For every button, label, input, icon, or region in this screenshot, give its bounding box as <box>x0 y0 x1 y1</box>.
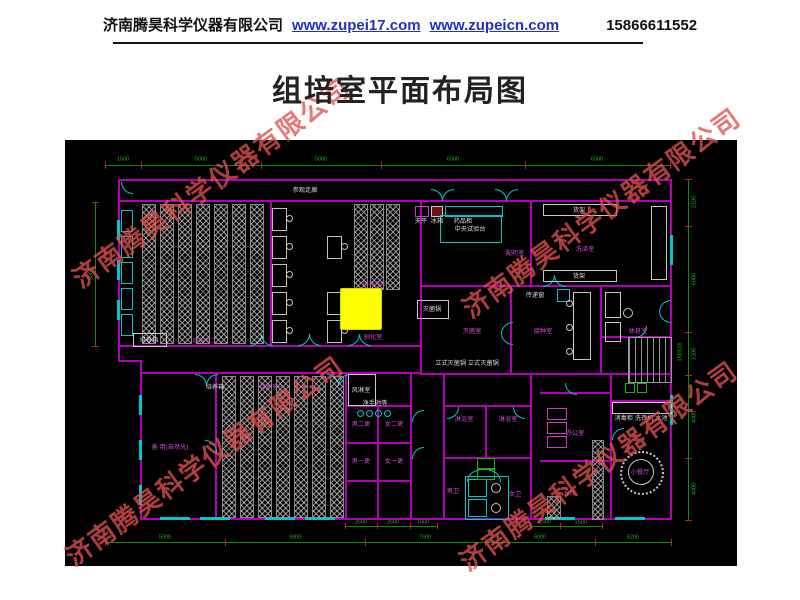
wall <box>118 179 672 181</box>
incubator-box <box>121 314 133 336</box>
door-arc <box>442 189 454 201</box>
window <box>670 235 673 265</box>
culture-rack <box>160 204 174 344</box>
wall <box>118 360 142 362</box>
room-label-toilet-f: 女卫 <box>509 488 521 497</box>
vertical-autoclave-label: 立式灭菌锅 立式灭菌锅 <box>435 357 499 366</box>
dimension-tick <box>685 226 692 227</box>
dimension-tick <box>530 523 531 529</box>
wall <box>530 200 532 287</box>
clean-bench <box>573 292 591 360</box>
storage-rack <box>592 440 604 520</box>
wall <box>377 405 379 520</box>
dimension-tick <box>105 162 106 169</box>
door-arc <box>121 182 133 194</box>
window <box>615 517 645 520</box>
dimension-line <box>688 179 689 521</box>
window <box>139 485 142 505</box>
room-label-culture-3: 培养室三 <box>363 278 388 287</box>
dimension-tick <box>685 520 692 521</box>
dimension-tick <box>560 523 561 529</box>
incubator-box <box>121 236 133 258</box>
room-label-sterilization: 灭菌室 <box>463 325 482 334</box>
website-link-2[interactable]: www.zupeicn.com <box>430 17 559 34</box>
dimension-tick <box>105 539 106 546</box>
dimension-tick <box>685 332 692 333</box>
door-arc <box>501 333 513 345</box>
page-title: 组培室平面布局图 <box>0 66 800 110</box>
dimension-tick <box>685 179 692 180</box>
dim-label: 7600 <box>419 534 431 540</box>
pass-window-label: 传递窗 <box>526 289 545 298</box>
wash-basin <box>477 458 495 469</box>
dimension-line <box>105 542 672 543</box>
dim-label: 2100 <box>691 196 697 208</box>
window <box>117 260 120 280</box>
room-label-prep: 配药室 <box>506 247 525 256</box>
dimension-tick <box>377 523 378 529</box>
culture-rack <box>354 204 368 290</box>
wall <box>610 373 612 520</box>
corridor-label: 参观走廊 <box>293 184 318 193</box>
appliance-row-label: 消毒柜 洗衣机 水池 <box>614 412 667 421</box>
dimension-tick <box>437 523 438 529</box>
wall <box>140 372 422 374</box>
culture-unit <box>272 292 287 315</box>
room-label-acclimation: 驯化室 <box>364 331 383 340</box>
sink <box>375 410 382 417</box>
header: 济南腾昊科学仪器有限公司 www.zupei17.com www.zupeicn… <box>0 14 800 35</box>
incubator-label: 培养箱 <box>206 381 225 390</box>
room-label-spare: 备 用(自然光) <box>152 441 189 450</box>
floor-plan-canvas: 1500 5000 5000 6000 6000 5000 2100 6000 … <box>65 140 737 566</box>
window <box>117 220 120 240</box>
dim-label: 4000 <box>691 483 697 495</box>
sink <box>384 410 391 417</box>
sink <box>366 410 373 417</box>
culture-rack <box>240 376 254 518</box>
shelf-label: 货架 <box>573 204 585 213</box>
room-label-shower-2: 淋浴室 <box>499 413 518 422</box>
culture-rack <box>214 204 228 344</box>
appliance <box>625 383 635 393</box>
window <box>160 517 190 520</box>
dimension-line <box>530 526 602 527</box>
dimension-line <box>345 526 437 527</box>
room-label-shower-1: 淋浴室 <box>455 413 474 422</box>
appliance <box>637 383 647 393</box>
room-label-culture-2: 培养室二 <box>193 335 218 344</box>
storage-rack <box>547 496 561 520</box>
dim-label: 5200 <box>627 534 639 540</box>
office-desk <box>547 408 567 420</box>
dimension-tick <box>685 458 692 459</box>
window <box>117 300 120 320</box>
table <box>623 308 633 318</box>
toilet-fixture <box>491 503 501 513</box>
culture-rack <box>250 204 264 344</box>
door-arc <box>659 311 671 323</box>
fridge-label: 冰箱 <box>431 215 443 224</box>
culture-rack <box>370 204 384 290</box>
page: 济南腾昊科学仪器有限公司 www.zupei17.com www.zupeicn… <box>0 0 800 600</box>
door-arc <box>412 410 424 422</box>
dimension-tick <box>595 539 596 546</box>
header-divider <box>113 42 643 44</box>
stair-dim-note: 150X16 <box>677 343 683 362</box>
dimension-tick <box>410 523 411 529</box>
company-name: 济南腾昊科学仪器有限公司 <box>103 14 283 35</box>
dim-label: 1500 <box>691 348 697 360</box>
room-label-change-f1: 女一更 <box>385 455 404 464</box>
wall <box>410 372 412 520</box>
culture-rack <box>386 204 400 290</box>
sofa <box>605 322 621 342</box>
phone-number: 15866611552 <box>606 17 697 34</box>
wall <box>345 372 347 520</box>
dimension-tick <box>345 523 346 529</box>
office-desk <box>547 436 567 448</box>
room-label-culture-1: 培养室一 <box>260 381 285 390</box>
incubator-box <box>121 288 133 310</box>
dimension-tick <box>485 539 486 546</box>
culture-unit <box>272 320 287 343</box>
toilet-fixture <box>491 483 501 493</box>
autoclave-label: 灭菌锅 <box>423 303 442 312</box>
dimension-tick <box>671 539 672 546</box>
shelf-label: 货架 <box>573 270 585 279</box>
wall <box>420 200 422 375</box>
incubator-label: 培养箱 <box>140 334 159 343</box>
highlight-box <box>340 288 382 330</box>
medicine-cabinet-label: 药品柜 <box>454 215 473 224</box>
dim-label: 1500 <box>117 156 129 162</box>
room-label-dining: 小餐厅 <box>631 466 650 475</box>
culture-unit <box>272 236 287 259</box>
room-label-rest: 休息室 <box>629 325 648 334</box>
culture-rack <box>276 376 290 518</box>
window <box>139 440 142 460</box>
room-label-office: 办公室 <box>566 427 585 436</box>
dimension-tick <box>225 539 226 546</box>
wall <box>530 373 532 520</box>
toilet-stall <box>468 499 487 517</box>
dimension-tick <box>381 162 382 169</box>
door-arc <box>612 428 624 440</box>
dim-label: 6000 <box>591 156 603 162</box>
sink <box>357 410 364 417</box>
incubator-box <box>121 210 133 232</box>
air-shower-label: 风淋室 <box>352 384 371 393</box>
office-desk <box>547 422 567 434</box>
door-arc <box>412 447 424 459</box>
dim-label: 5000 <box>159 534 171 540</box>
dim-label: 5000 <box>195 156 207 162</box>
room-label-toilet-m: 男卫 <box>447 485 459 494</box>
culture-rack <box>330 376 344 518</box>
culture-rack <box>196 204 210 344</box>
stool <box>566 324 573 331</box>
dimension-tick <box>602 523 603 529</box>
dimension-tick <box>670 162 671 169</box>
room-label-change-m2: 男二更 <box>352 418 371 427</box>
dimension-tick <box>92 346 99 347</box>
dim-label: 6000 <box>691 273 697 285</box>
dim-label: 5000 <box>88 268 94 280</box>
culture-unit <box>272 264 287 287</box>
staircase <box>628 337 672 383</box>
wall <box>118 200 672 202</box>
wash-basin <box>477 469 495 480</box>
dimension-tick <box>141 162 142 169</box>
wall <box>443 373 445 520</box>
culture-rack <box>178 204 192 344</box>
room-label-inoculation: 接种室 <box>534 325 553 334</box>
dimension-tick <box>365 539 366 546</box>
dimension-tick <box>92 202 99 203</box>
window <box>139 395 142 415</box>
culture-unit <box>327 236 342 259</box>
shelf <box>651 206 667 280</box>
toilet-stall <box>468 479 487 497</box>
culture-rack <box>222 376 236 518</box>
culture-rack <box>258 376 272 518</box>
dimension-tick <box>261 162 262 169</box>
door-arc <box>506 189 518 201</box>
stool <box>566 348 573 355</box>
dimension-line <box>105 165 671 166</box>
dim-label: 4000 <box>691 411 697 423</box>
dimension-line <box>95 202 96 347</box>
culture-rack <box>294 376 308 518</box>
website-link-1[interactable]: www.zupei17.com <box>292 17 421 34</box>
wall <box>600 285 602 375</box>
dimension-tick <box>685 375 692 376</box>
balance-label: 天平 <box>415 215 427 224</box>
room-label-warehouse: 仓库 <box>564 487 576 496</box>
hand-wash-label: 净手池等 <box>363 397 388 406</box>
central-bench-label: 中央试验台 <box>455 223 486 232</box>
culture-rack <box>142 204 156 344</box>
dim-label: 6000 <box>534 534 546 540</box>
room-label-change-m1: 男一更 <box>352 455 371 464</box>
room-label-washing: 洗涤室 <box>576 243 595 252</box>
dim-label: 5000 <box>315 156 327 162</box>
culture-unit <box>272 208 287 231</box>
culture-rack <box>312 376 326 518</box>
stool <box>566 300 573 307</box>
dim-label: 9000 <box>289 534 301 540</box>
wall <box>485 407 487 457</box>
dimension-tick <box>525 162 526 169</box>
sofa <box>605 292 621 318</box>
incubator-box <box>121 262 133 284</box>
culture-rack <box>232 204 246 344</box>
dim-label: 6000 <box>447 156 459 162</box>
room-label-change-f2: 女二更 <box>385 418 404 427</box>
